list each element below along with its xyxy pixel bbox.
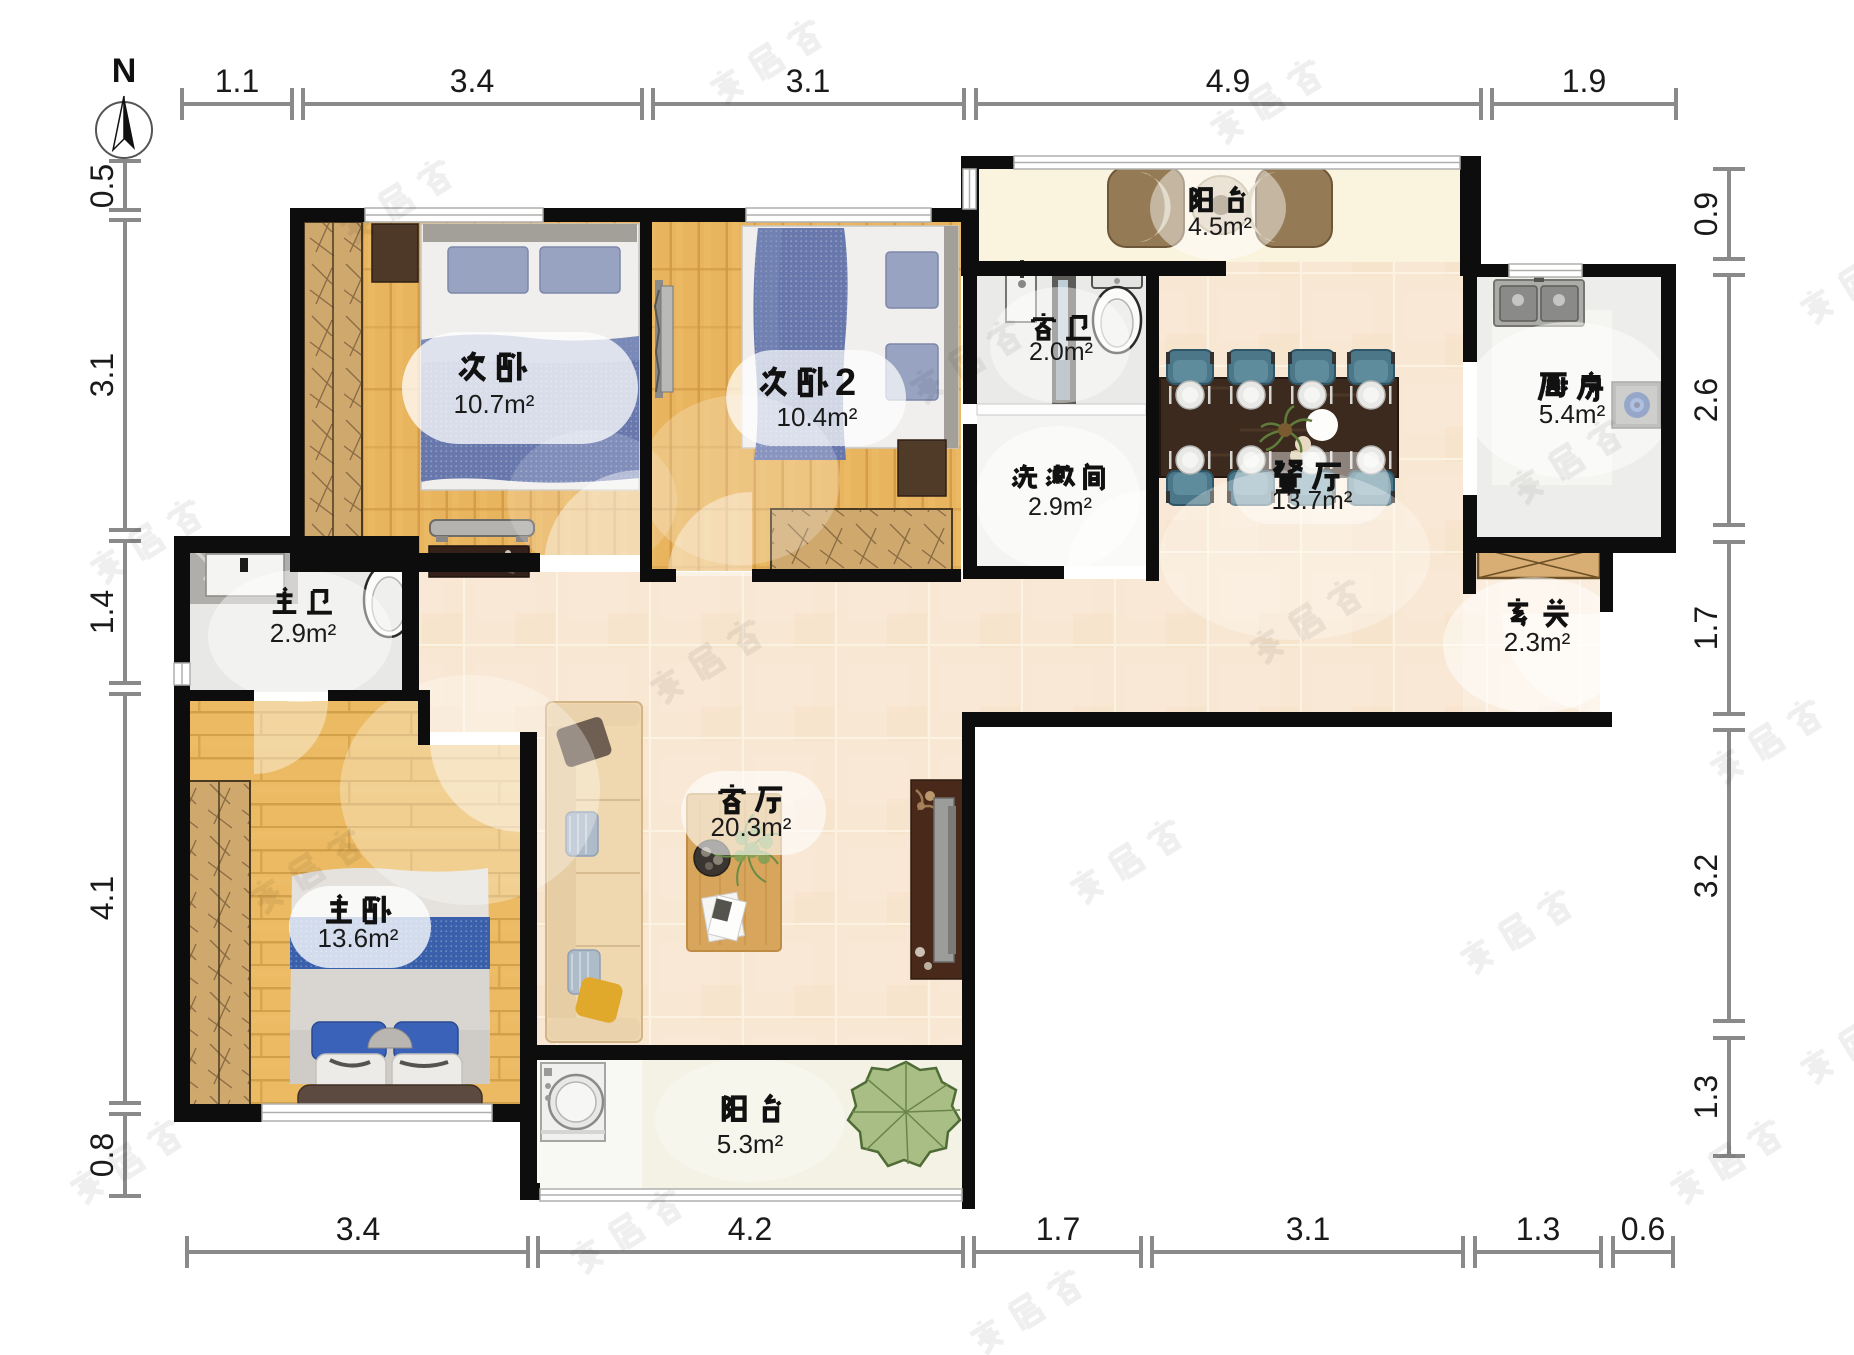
svg-text:0.9: 0.9 bbox=[1688, 192, 1724, 236]
svg-text:2.0m²: 2.0m² bbox=[1029, 338, 1093, 366]
svg-text:1.1: 1.1 bbox=[215, 63, 259, 99]
svg-text:10.4m²: 10.4m² bbox=[777, 402, 858, 432]
svg-text:1.7: 1.7 bbox=[1688, 606, 1724, 650]
svg-text:2.9m²: 2.9m² bbox=[270, 618, 337, 648]
svg-text:2: 2 bbox=[835, 362, 856, 404]
svg-text:4.5m²: 4.5m² bbox=[1188, 213, 1252, 241]
svg-text:1.3: 1.3 bbox=[1688, 1075, 1724, 1119]
svg-text:3.1: 3.1 bbox=[786, 63, 830, 99]
svg-text:13.7m²: 13.7m² bbox=[1272, 485, 1353, 515]
svg-text:0.6: 0.6 bbox=[1621, 1211, 1665, 1247]
svg-text:3.2: 3.2 bbox=[1688, 854, 1724, 898]
svg-text:2.3m²: 2.3m² bbox=[1504, 627, 1571, 657]
svg-text:4.9: 4.9 bbox=[1206, 63, 1250, 99]
svg-text:0.5: 0.5 bbox=[84, 164, 120, 208]
svg-text:13.6m²: 13.6m² bbox=[318, 923, 399, 953]
svg-text:4.2: 4.2 bbox=[728, 1211, 772, 1247]
svg-text:1.3: 1.3 bbox=[1516, 1211, 1560, 1247]
svg-text:4.1: 4.1 bbox=[84, 876, 120, 920]
svg-text:2.9m²: 2.9m² bbox=[1028, 493, 1092, 521]
svg-text:1.4: 1.4 bbox=[84, 590, 120, 634]
svg-text:3.1: 3.1 bbox=[84, 353, 120, 397]
svg-text:3.1: 3.1 bbox=[1286, 1211, 1330, 1247]
svg-text:10.7m²: 10.7m² bbox=[454, 389, 535, 419]
svg-text:2.6: 2.6 bbox=[1688, 378, 1724, 422]
svg-text:3.4: 3.4 bbox=[336, 1211, 380, 1247]
svg-text:20.3m²: 20.3m² bbox=[711, 812, 792, 842]
svg-text:3.4: 3.4 bbox=[450, 63, 494, 99]
svg-text:5.3m²: 5.3m² bbox=[717, 1129, 784, 1159]
svg-text:N: N bbox=[112, 52, 137, 90]
svg-text:1.7: 1.7 bbox=[1036, 1211, 1080, 1247]
svg-text:1.9: 1.9 bbox=[1562, 63, 1606, 99]
